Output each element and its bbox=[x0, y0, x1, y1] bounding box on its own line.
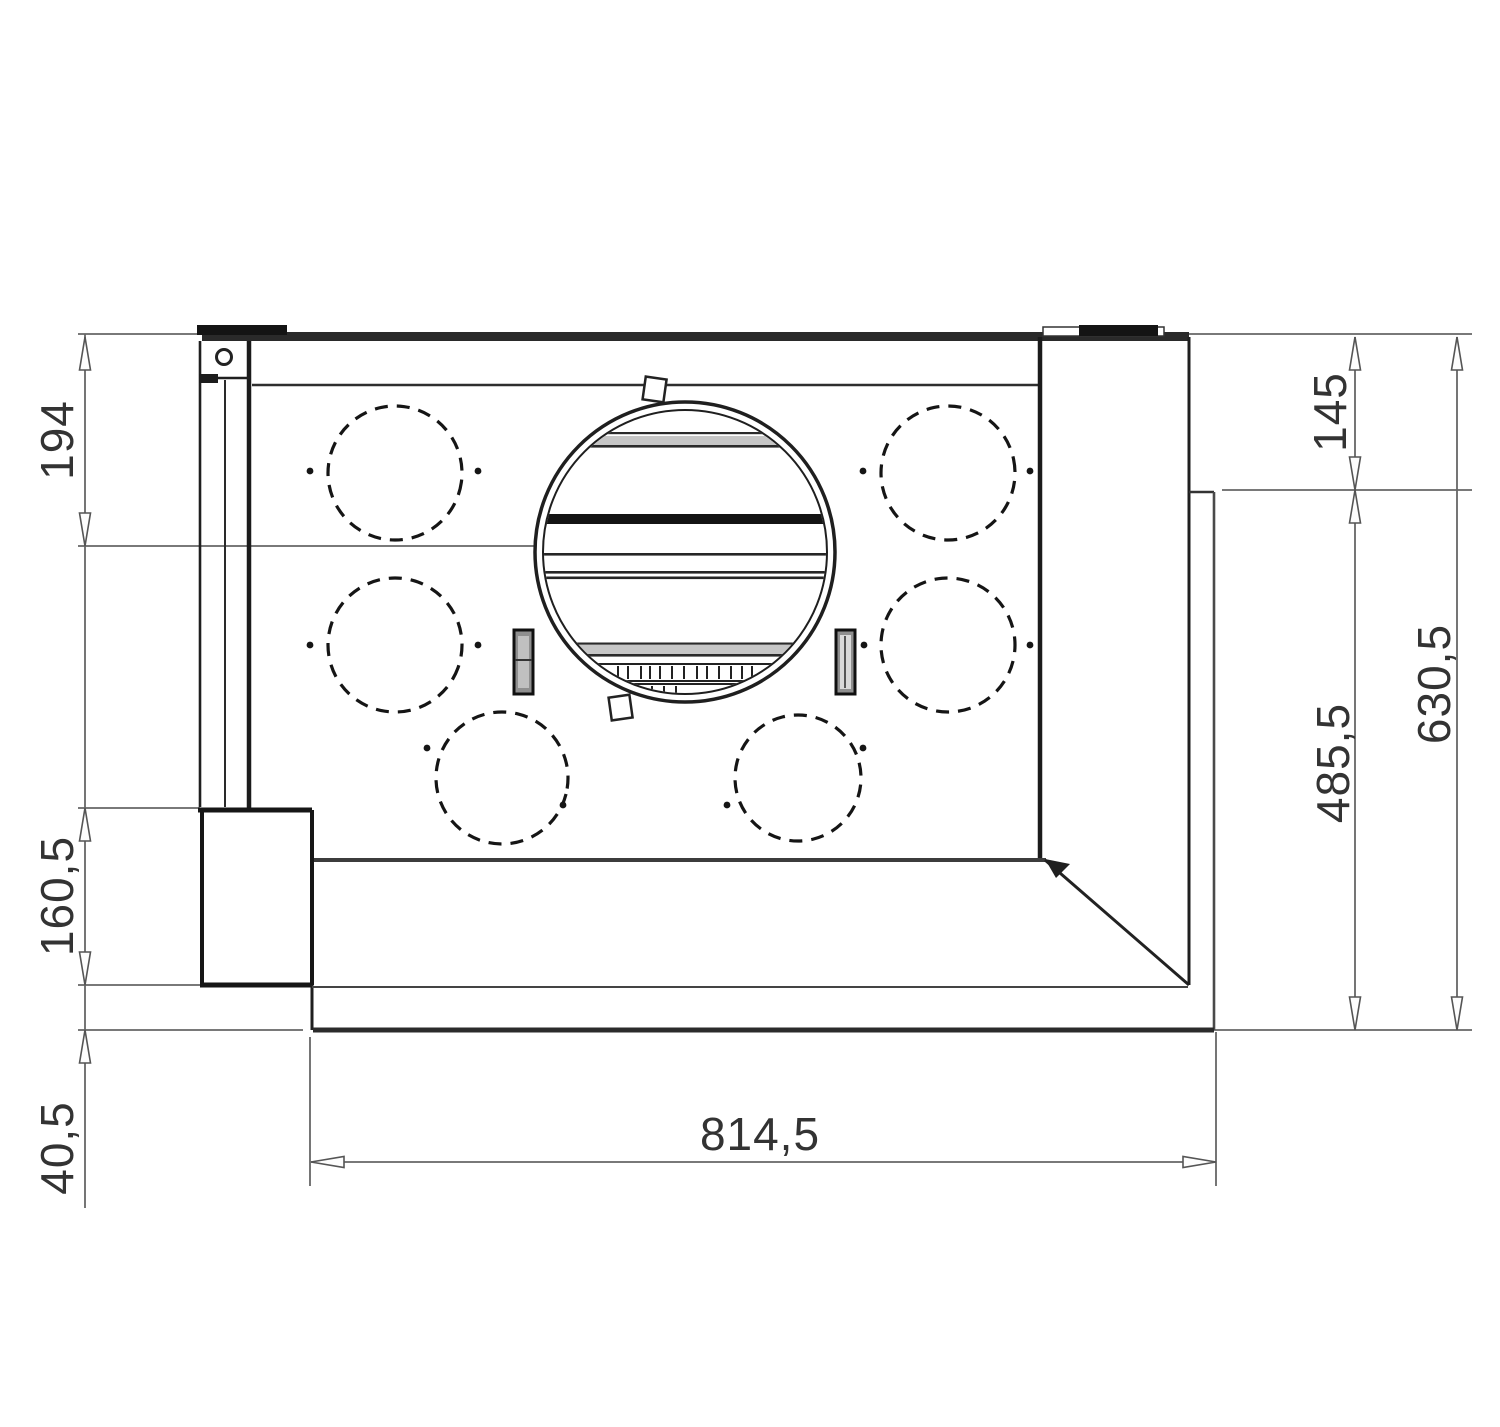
filter-circle-bottom-right bbox=[722, 702, 875, 855]
louver-line-5 bbox=[520, 577, 850, 580]
arrow-145-bottom bbox=[1350, 457, 1361, 490]
dot bbox=[1027, 642, 1034, 649]
vent-slot-left-inner bbox=[518, 636, 529, 688]
corner-diagonal bbox=[1045, 860, 1189, 985]
louver-line-2 bbox=[520, 445, 850, 448]
filter-circle-top-right bbox=[869, 394, 1028, 553]
arrow-194-top bbox=[80, 337, 91, 370]
dimension-label-194: 194 bbox=[31, 400, 83, 480]
arrow-630-top bbox=[1452, 337, 1463, 370]
fan-tab-top bbox=[643, 377, 667, 403]
dot bbox=[1027, 468, 1034, 475]
arrow-40-bottom bbox=[80, 1030, 91, 1063]
dot bbox=[424, 745, 431, 752]
arrow-145-top bbox=[1350, 337, 1361, 370]
dot bbox=[307, 642, 314, 649]
dimension-label-485-5: 485,5 bbox=[1307, 703, 1359, 823]
right-top-cap bbox=[1079, 325, 1158, 336]
dot bbox=[861, 642, 868, 649]
louver-line-7 bbox=[520, 654, 850, 657]
arrow-485-top bbox=[1350, 490, 1361, 523]
filter-circle-top-left bbox=[319, 397, 470, 548]
dimension-label-160-5: 160,5 bbox=[31, 836, 83, 956]
fan-tab-bottom bbox=[609, 695, 633, 721]
dot bbox=[860, 468, 867, 475]
technical-drawing-page: 194 160,5 40,5 145 485,5 630,5 814,5 bbox=[0, 0, 1500, 1427]
dimension-label-630-5: 630,5 bbox=[1408, 624, 1460, 744]
filter-circle-middle-left bbox=[309, 559, 481, 731]
arrow-485-bottom bbox=[1350, 997, 1361, 1030]
dot bbox=[724, 802, 731, 809]
louver-band-top-fill bbox=[520, 436, 850, 445]
diagonal-arrowhead bbox=[1045, 859, 1070, 878]
bracket-step bbox=[199, 374, 218, 383]
arrow-814-right bbox=[1183, 1157, 1216, 1168]
filter-circle-middle-right bbox=[875, 572, 1020, 717]
dimension-label-814-5: 814,5 bbox=[700, 1108, 820, 1160]
arrow-194-bottom bbox=[80, 513, 91, 546]
dimension-drawing: 194 160,5 40,5 145 485,5 630,5 814,5 bbox=[0, 0, 1500, 1427]
louver-thick-band bbox=[520, 514, 850, 524]
dimension-label-145: 145 bbox=[1304, 372, 1356, 452]
left-top-cap bbox=[197, 325, 287, 335]
dimension-label-40-5: 40,5 bbox=[31, 1101, 83, 1195]
arrow-630-bottom bbox=[1452, 997, 1463, 1030]
louver-line-3 bbox=[520, 553, 850, 556]
louver-line-1 bbox=[520, 432, 850, 434]
dot bbox=[475, 642, 482, 649]
filter-circle-bottom-left bbox=[422, 698, 582, 858]
dot bbox=[475, 468, 482, 475]
dot bbox=[560, 802, 567, 809]
fan-assembly bbox=[520, 377, 850, 721]
bracket-hole bbox=[217, 350, 232, 365]
dot bbox=[307, 468, 314, 475]
louver-line-4 bbox=[520, 571, 850, 574]
dot bbox=[860, 745, 867, 752]
arrow-814-left bbox=[311, 1157, 344, 1168]
